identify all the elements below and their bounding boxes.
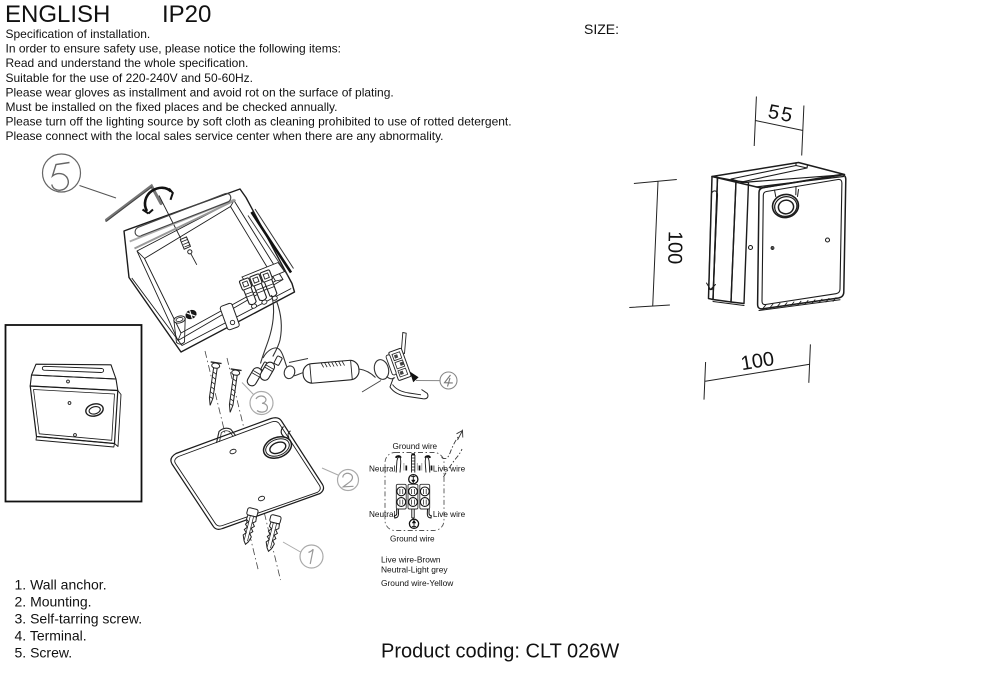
svg-text:1. Wall anchor.: 1. Wall anchor. (15, 577, 107, 593)
svg-text:Neutral-Light grey: Neutral-Light grey (381, 564, 448, 574)
svg-text:In order to ensure safety use,: In order to ensure safety use, please no… (6, 42, 342, 56)
svg-text:2. Mounting.: 2. Mounting. (15, 594, 92, 610)
svg-text:IP20: IP20 (162, 1, 211, 28)
svg-text:Neutral: Neutral (369, 510, 396, 519)
svg-text:5. Screw.: 5. Screw. (15, 645, 73, 661)
svg-text:Read and understand the whole: Read and understand the whole specificat… (6, 56, 249, 70)
svg-text:Specification of installation.: Specification of installation. (6, 27, 151, 41)
svg-text:3. Self-tarring screw.: 3. Self-tarring screw. (15, 611, 143, 627)
svg-text:Ground wire: Ground wire (390, 535, 435, 544)
svg-text:Live wire-Brown: Live wire-Brown (381, 555, 441, 565)
svg-text:Suitable for the use of 220-24: Suitable for the use of 220-240V and 50-… (6, 71, 254, 85)
svg-text:4. Terminal.: 4. Terminal. (15, 628, 87, 644)
svg-text:Please turn off the lighting s: Please turn off the lighting source by s… (6, 115, 512, 129)
svg-text:Ground wire-Yellow: Ground wire-Yellow (381, 578, 454, 588)
svg-text:Live wire: Live wire (433, 510, 466, 519)
svg-text:Product coding: CLT 026W: Product coding: CLT 026W (381, 640, 619, 662)
svg-text:Ground wire: Ground wire (393, 442, 438, 451)
svg-text:Please wear gloves as installm: Please wear gloves as installment and av… (6, 85, 394, 99)
svg-text:Neutral: Neutral (369, 465, 396, 474)
svg-text:100: 100 (663, 231, 686, 265)
svg-text:Must be installed on the fixed: Must be installed on the fixed places an… (6, 100, 338, 114)
svg-text:ENGLISH: ENGLISH (5, 1, 110, 28)
svg-text:Live wire: Live wire (433, 465, 466, 474)
svg-text:SIZE:: SIZE: (584, 21, 619, 37)
svg-text:Please connect with the local: Please connect with the local sales serv… (6, 129, 444, 143)
